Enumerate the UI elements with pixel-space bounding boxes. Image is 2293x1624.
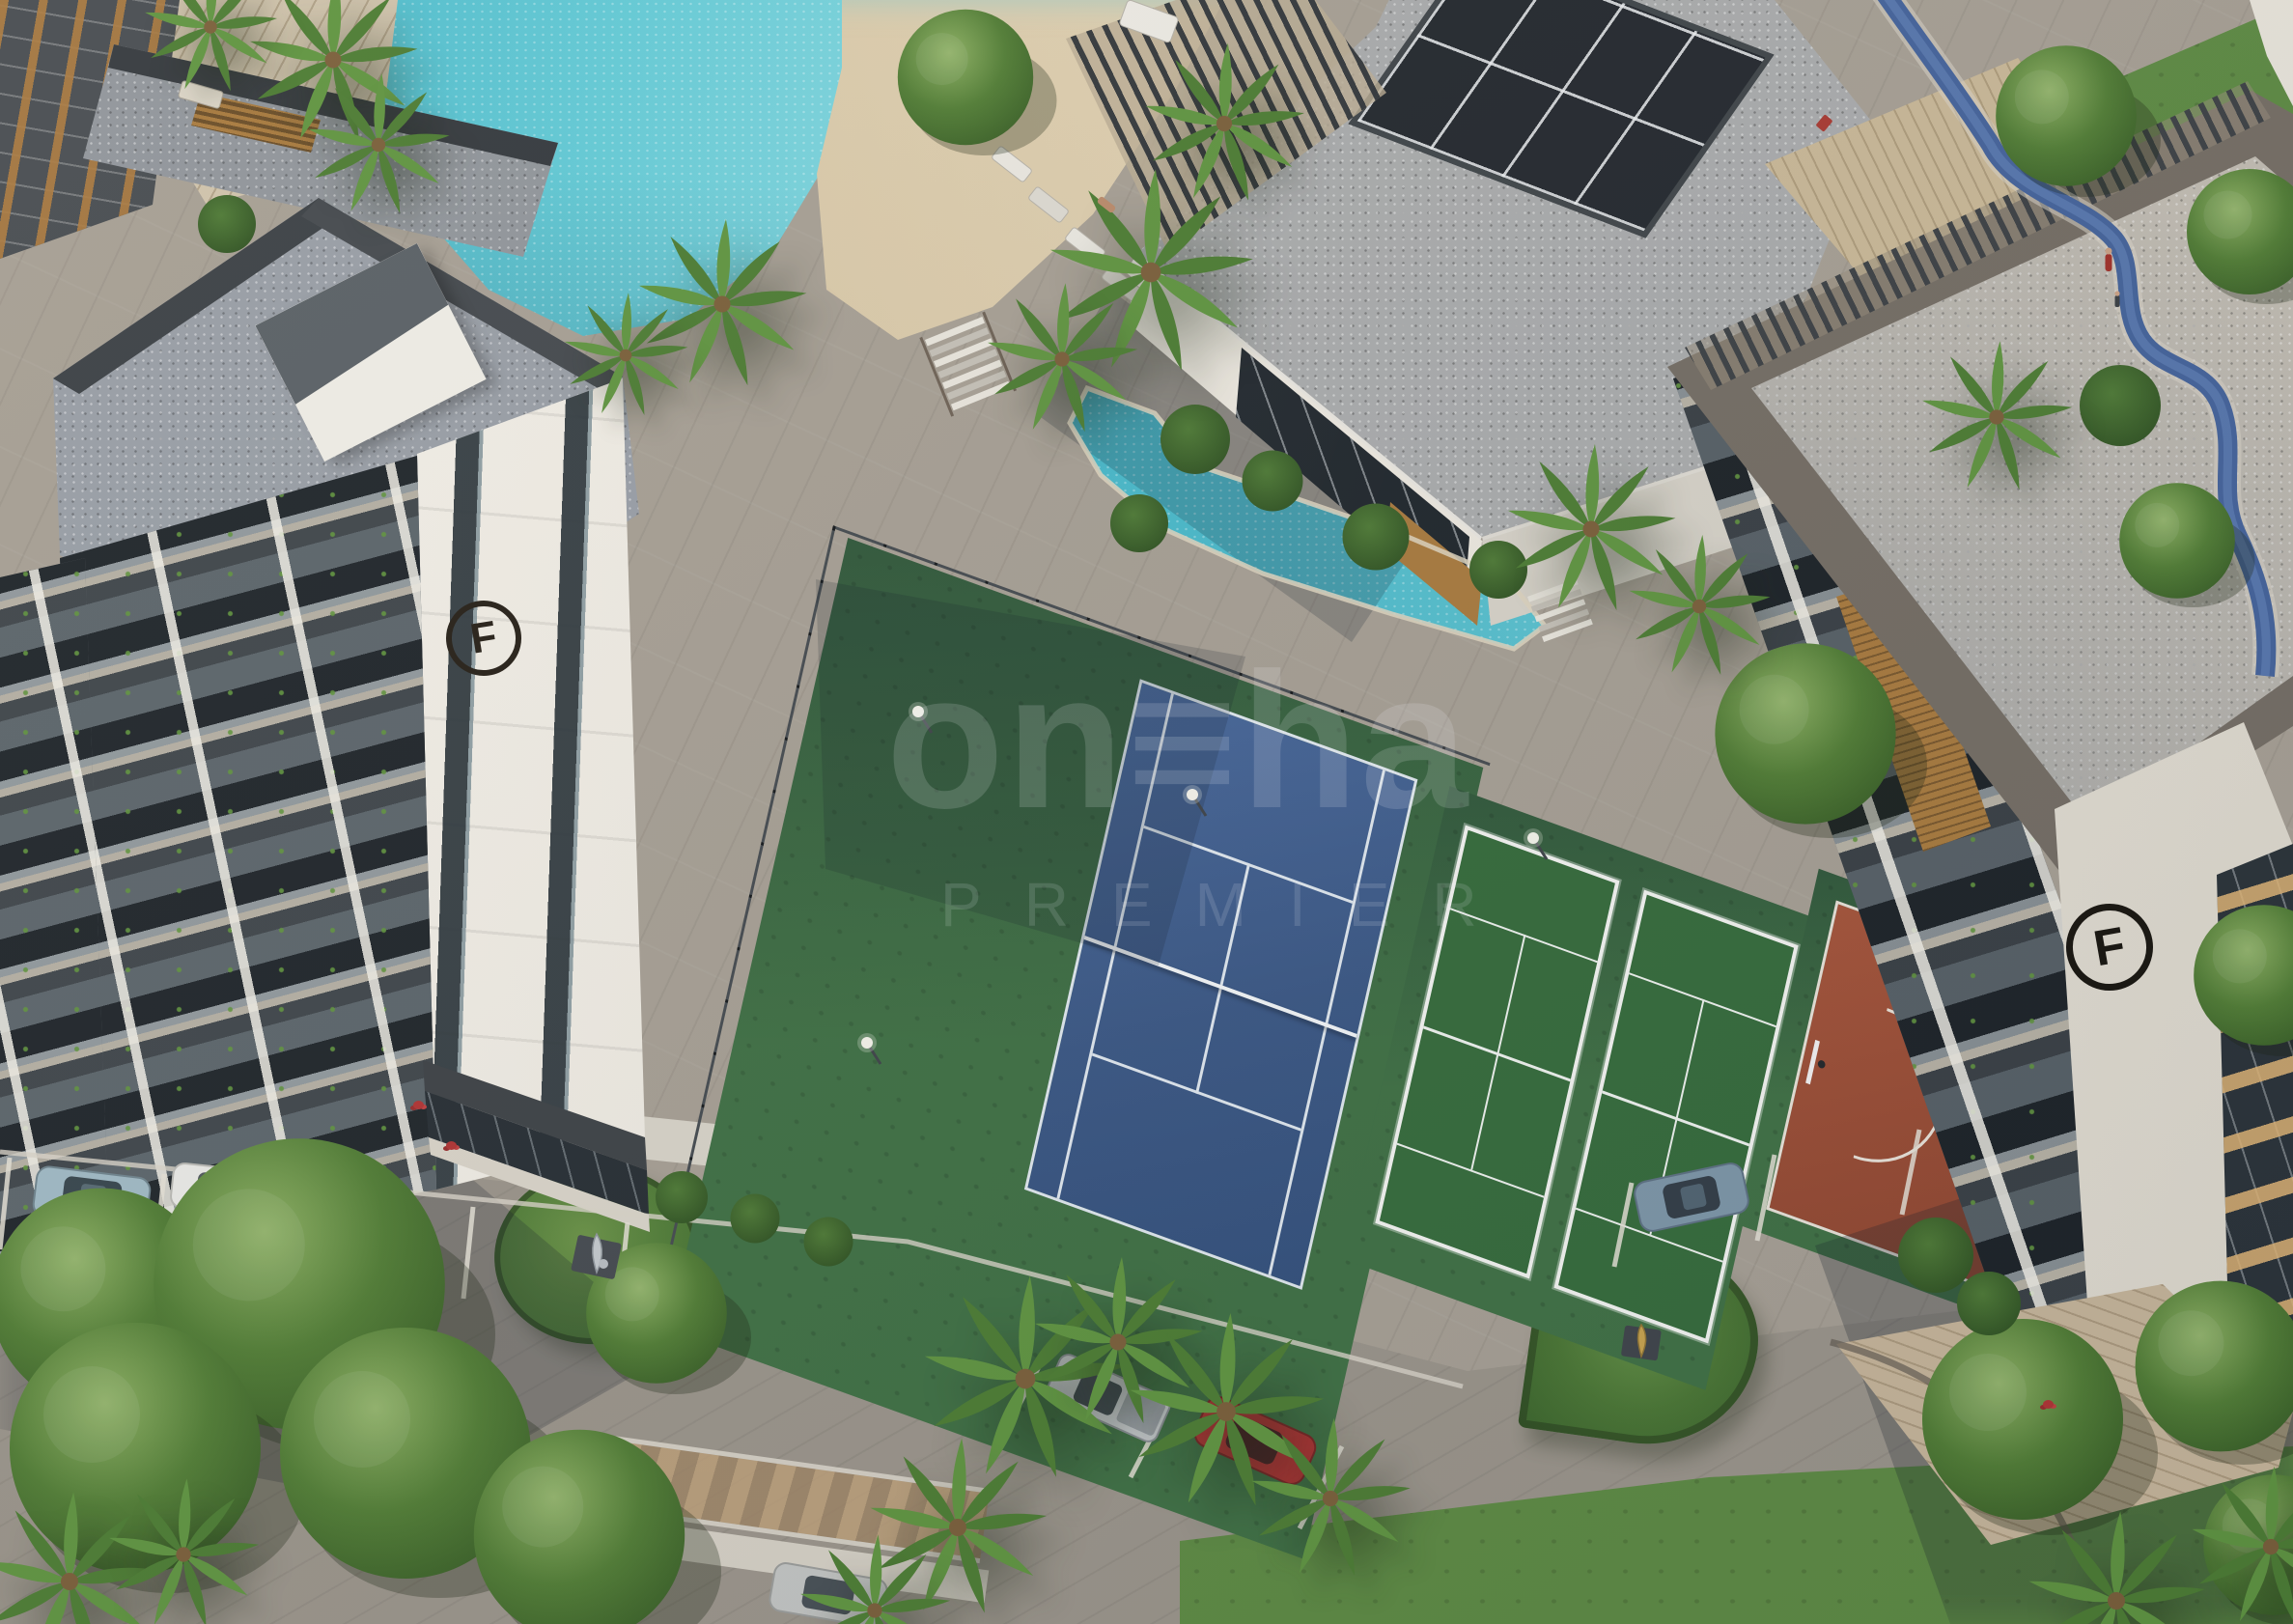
person-walking: [2106, 248, 2112, 272]
car-steelblue-suv: [1633, 1162, 1750, 1234]
beach-loungers: [178, 0, 1179, 302]
person-child: [2114, 291, 2119, 307]
flower-planter: [413, 1101, 424, 1109]
flower-planter: [2043, 1400, 2054, 1409]
aerial-render-scene: F F: [0, 0, 2293, 1624]
watermark-sub-text: PREMIER: [898, 874, 1458, 936]
sculpture-gold: [1621, 1325, 1662, 1360]
watermark-logo-text: on≡ha: [850, 645, 1506, 838]
flower-planter: [446, 1141, 457, 1150]
pool-stairs: [921, 312, 1016, 416]
sculpture-silver: [571, 1234, 622, 1279]
